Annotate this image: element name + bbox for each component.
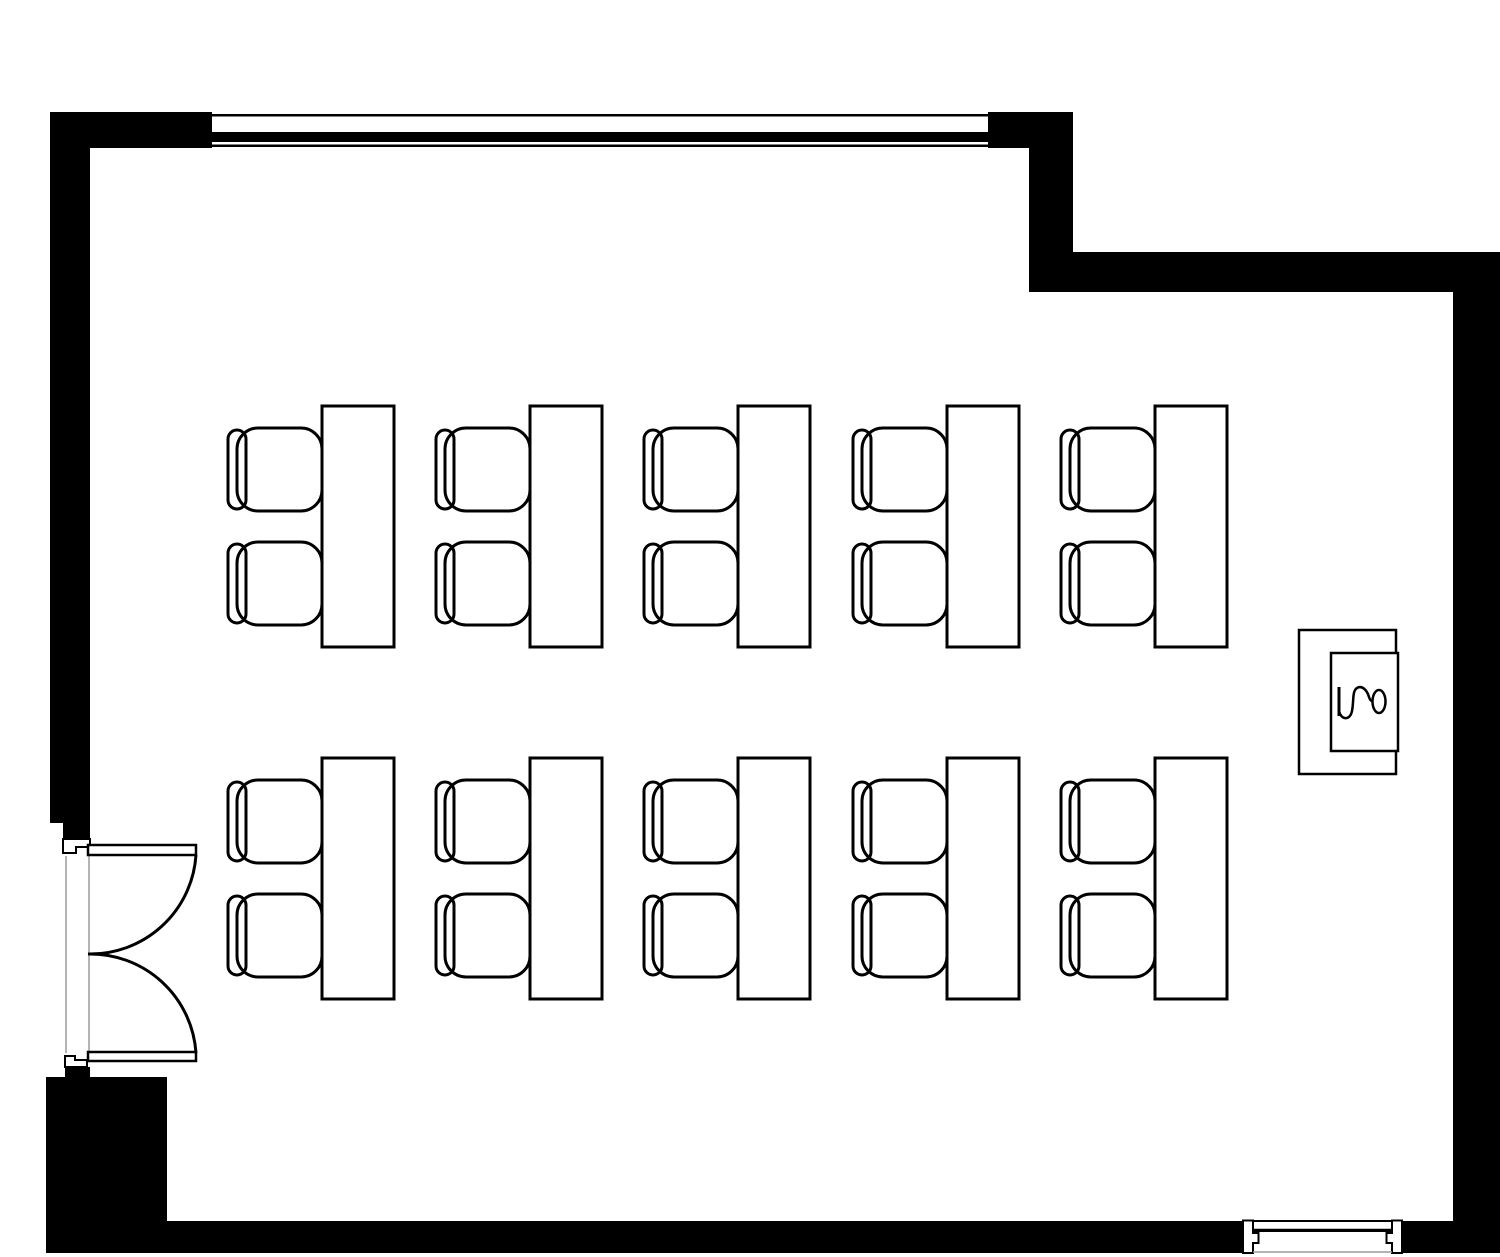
- chair-seat-r1-d4-1: [862, 428, 947, 511]
- chair-seat-r1-d5-2: [1070, 542, 1155, 625]
- door-swing-arc-top: [88, 855, 196, 954]
- chair-seat-r2-d3-2: [653, 894, 738, 977]
- wall-bottom-left-pier: [46, 1077, 167, 1253]
- window-top-inner-line: [212, 145, 988, 148]
- floor-plan: [0, 0, 1500, 1257]
- chair-seat-r1-d2-2: [445, 542, 530, 625]
- desk-r1-d5: [1155, 406, 1227, 647]
- desk-r2-d5: [1155, 758, 1227, 999]
- desk-r2-d3: [738, 758, 810, 999]
- wall-top-right-segment: [988, 112, 1073, 148]
- chair-seat-r2-d4-1: [862, 780, 947, 863]
- chair-seat-r2-d5-1: [1070, 780, 1155, 863]
- wall-bottom: [167, 1221, 1243, 1253]
- chair-seat-r2-d3-1: [653, 780, 738, 863]
- door-leaf-top: [88, 845, 196, 855]
- wall-bottom-right-segment: [1402, 1221, 1453, 1253]
- chair-seat-r1-d2-1: [445, 428, 530, 511]
- chair-seat-r2-d1-1: [237, 780, 322, 863]
- desk-r1-d4: [947, 406, 1019, 647]
- door-leaf-bottom: [88, 1052, 196, 1061]
- chair-seat-r2-d4-2: [862, 894, 947, 977]
- window-top-glazing-band: [212, 132, 988, 142]
- door-head-black-bottom: [65, 1067, 90, 1077]
- chair-seat-r2-d5-2: [1070, 894, 1155, 977]
- door-head-black-top: [63, 823, 90, 840]
- desk-r2-d2: [530, 758, 602, 999]
- chair-seat-r2-d2-2: [445, 894, 530, 977]
- fixture-inner-box: [1331, 653, 1398, 751]
- chair-seat-r1-d3-2: [653, 542, 738, 625]
- door-swing-arc-bottom: [88, 954, 196, 1053]
- door-jamb-top: [63, 839, 90, 853]
- chair-seat-r1-d1-2: [237, 542, 322, 625]
- chair-seat-r2-d1-2: [237, 894, 322, 977]
- chair-seat-r2-d2-1: [445, 780, 530, 863]
- wall-left: [50, 112, 90, 823]
- window-top-outer-line: [212, 114, 988, 117]
- wall-right: [1453, 252, 1500, 1253]
- desk-r2-d4: [947, 758, 1019, 999]
- desk-r2-d1: [322, 758, 394, 999]
- chair-seat-r1-d1-1: [237, 428, 322, 511]
- desk-r1-d2: [530, 406, 602, 647]
- wall-upper-right-horizontal: [1029, 252, 1453, 292]
- chair-seat-r1-d3-1: [653, 428, 738, 511]
- door-jamb-bottom: [65, 1056, 87, 1067]
- floor-plan-svg: [0, 0, 1500, 1257]
- chair-seat-r1-d4-2: [862, 542, 947, 625]
- desk-r1-d1: [322, 406, 394, 647]
- chair-seat-r1-d5-1: [1070, 428, 1155, 511]
- desk-r1-d3: [738, 406, 810, 647]
